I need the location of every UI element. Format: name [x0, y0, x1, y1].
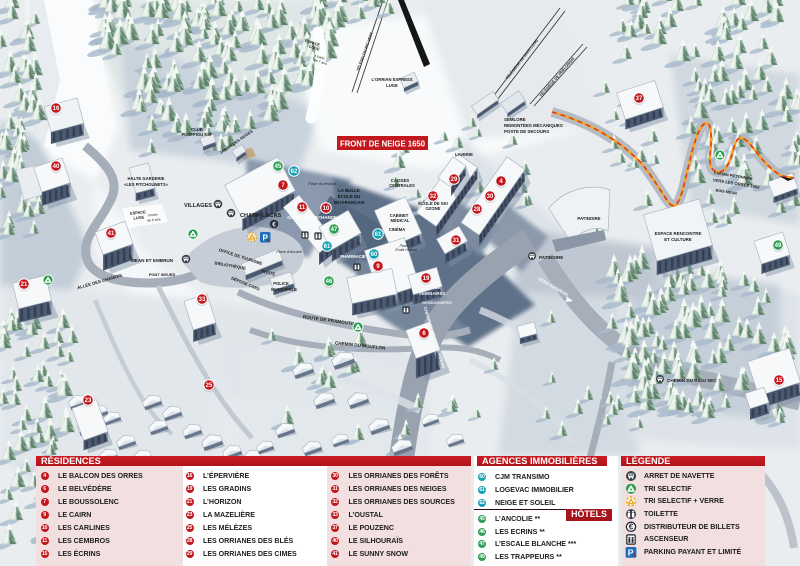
svg-text:25: 25 [206, 383, 213, 389]
svg-text:CHEMIN DU RIOU SEC: CHEMIN DU RIOU SEC [667, 378, 717, 383]
svg-text:ÉCOLE DU: ÉCOLE DU [338, 194, 361, 199]
svg-text:SEMLORE: SEMLORE [504, 117, 526, 122]
svg-text:VILLAGES: VILLAGES [184, 203, 212, 209]
svg-text:40: 40 [53, 164, 60, 170]
svg-text:POLICE: POLICE [273, 281, 289, 286]
svg-text:33: 33 [199, 297, 206, 303]
svg-text:41: 41 [108, 231, 115, 237]
svg-text:MÉDICAL: MÉDICAL [390, 218, 410, 223]
svg-text:MEAN ET EMBRUN: MEAN ET EMBRUN [131, 258, 174, 263]
svg-text:CHAMP LACAS: CHAMP LACAS [240, 213, 281, 219]
svg-text:PIOU PIOU ESF: PIOU PIOU ESF [182, 132, 213, 137]
svg-text:PONT SIEURS: PONT SIEURS [149, 272, 176, 277]
svg-text:32: 32 [430, 194, 437, 200]
svg-text:19: 19 [423, 276, 430, 282]
svg-text:GENDARMERIE: GENDARMERIE [422, 300, 452, 305]
svg-text:10: 10 [323, 206, 330, 212]
svg-text:SKI FRANÇAIS: SKI FRANÇAIS [333, 200, 364, 205]
svg-text:LUGE: LUGE [386, 83, 398, 88]
svg-text:REMONTÉES MÉCANIQUES: REMONTÉES MÉCANIQUES [504, 123, 563, 128]
svg-text:CINÉMA: CINÉMA [389, 227, 406, 232]
svg-text:LA BULLE: LA BULLE [338, 188, 360, 193]
svg-text:62: 62 [291, 169, 298, 175]
svg-text:PHARMACIE: PHARMACIE [340, 254, 366, 259]
svg-text:45: 45 [275, 164, 282, 170]
svg-text:LAVERIE: LAVERIE [455, 152, 473, 157]
svg-text:47: 47 [331, 227, 338, 233]
svg-text:SALLE DE: SALLE DE [420, 285, 441, 290]
svg-text:ESPACE RENCONTRE: ESPACE RENCONTRE [655, 231, 702, 236]
svg-text:SÉMINAIRES: SÉMINAIRES [419, 291, 445, 296]
svg-text:28: 28 [474, 207, 481, 213]
svg-text:PATINOIRE: PATINOIRE [539, 255, 563, 260]
svg-text:Place du festival: Place du festival [308, 182, 336, 186]
svg-text:60: 60 [371, 252, 378, 258]
svg-text:CENTRALES: CENTRALES [389, 183, 415, 188]
svg-text:37: 37 [636, 96, 643, 102]
svg-text:61: 61 [375, 232, 382, 238]
svg-text:FRONT DE NEIGE 1650: FRONT DE NEIGE 1650 [340, 139, 425, 148]
svg-text:49: 49 [775, 243, 782, 249]
svg-text:46: 46 [326, 279, 333, 285]
svg-text:P: P [262, 234, 268, 243]
svg-text:Place d'accueil: Place d'accueil [276, 250, 301, 254]
svg-text:PATINOIRE: PATINOIRE [577, 216, 600, 221]
svg-text:MUNICIPALE: MUNICIPALE [271, 287, 297, 292]
svg-text:OZONE: OZONE [426, 206, 441, 211]
svg-text:31: 31 [453, 238, 460, 244]
svg-text:16: 16 [53, 106, 60, 112]
svg-text:21: 21 [21, 282, 28, 288]
svg-text:L'ORRIAN EXPRESS: L'ORRIAN EXPRESS [371, 77, 412, 82]
svg-text:«LES PITCHOUNETS»: «LES PITCHOUNETS» [124, 182, 169, 187]
svg-text:11: 11 [299, 205, 306, 211]
svg-text:61: 61 [324, 244, 331, 250]
svg-text:HALTE GARDERIE: HALTE GARDERIE [128, 176, 165, 181]
svg-text:ET CULTURE: ET CULTURE [664, 237, 692, 242]
svg-text:15: 15 [776, 378, 783, 384]
svg-text:23: 23 [85, 398, 92, 404]
svg-text:29: 29 [451, 177, 458, 183]
svg-text:30: 30 [487, 194, 494, 200]
svg-text:POSTE DE SECOURS: POSTE DE SECOURS [504, 129, 549, 134]
svg-text:Émile Hodoul: Émile Hodoul [395, 247, 417, 252]
svg-text:GALERIE MARCHANDE: GALERIE MARCHANDE [287, 215, 337, 220]
